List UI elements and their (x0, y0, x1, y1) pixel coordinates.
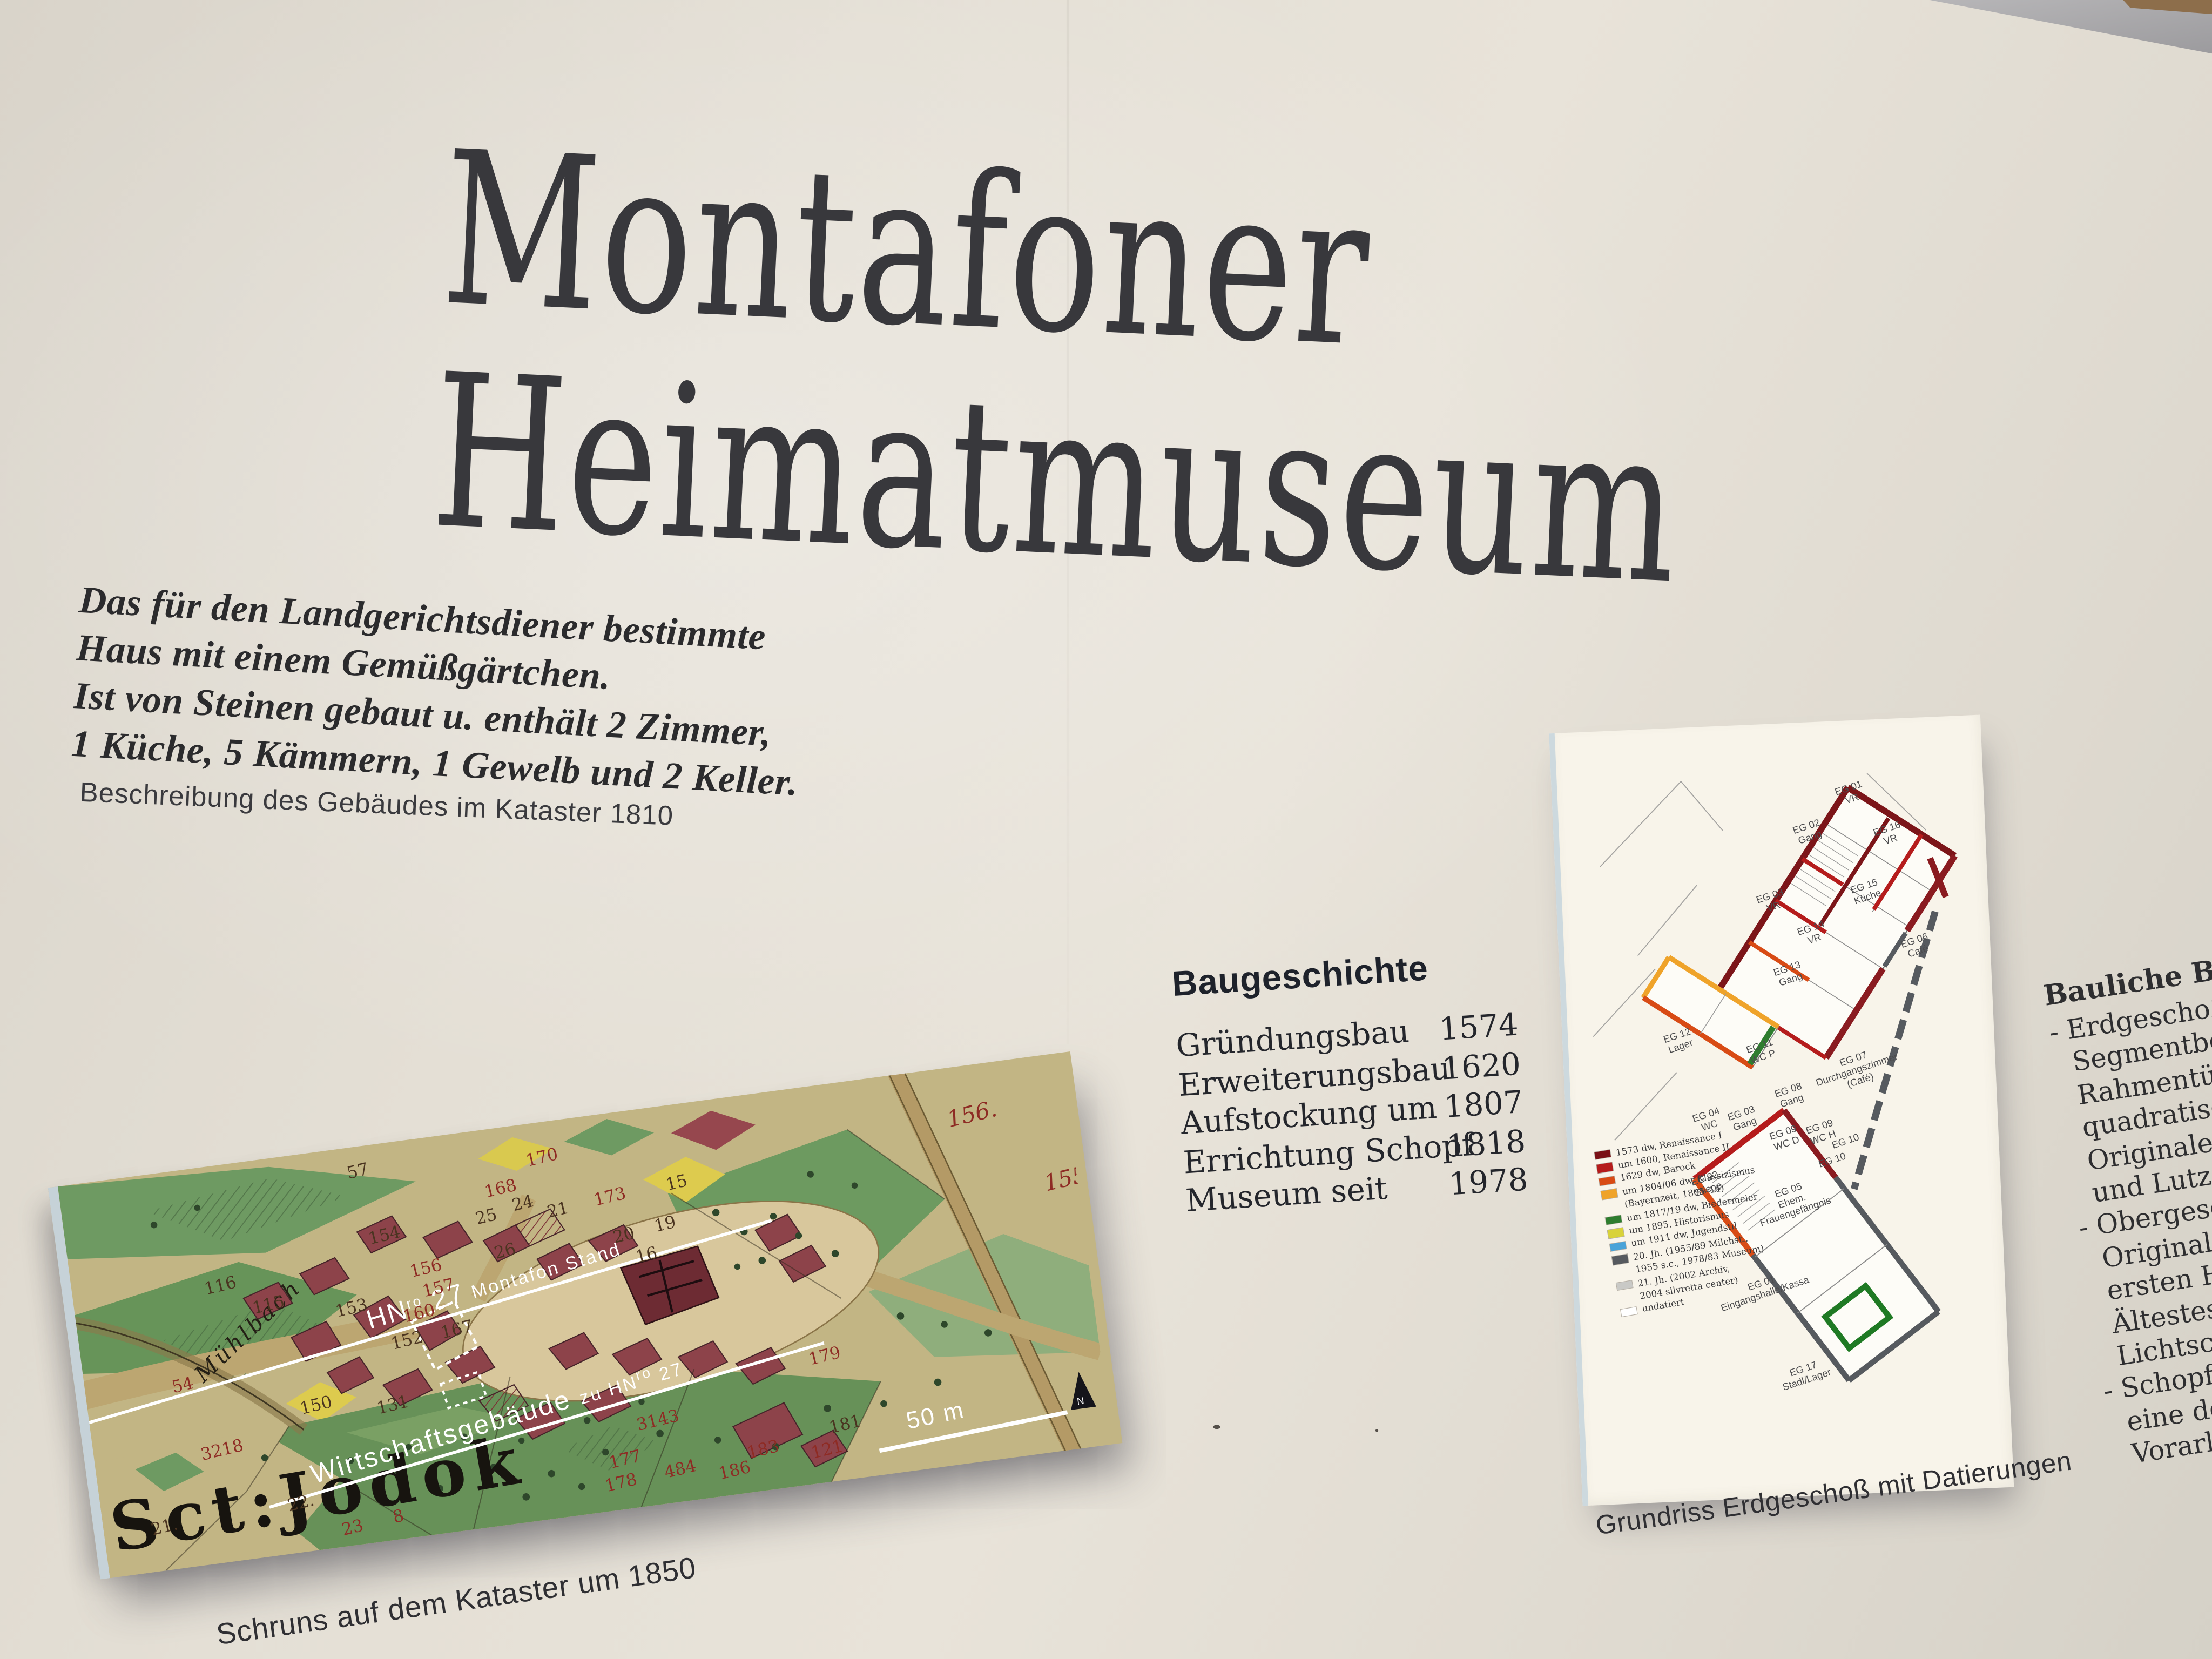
svg-text:N: N (1076, 1395, 1085, 1407)
baugeschichte-section: Baugeschichte Gründungsbau1574Erweiterun… (1171, 942, 1553, 1224)
floorplan-svg: EG 01VREG 02GangEG 16VREG 03VREG 15Küche… (1555, 715, 2008, 1506)
kataster-map: Sct:Jodok Mühlbach HNro 27 Montafon Stan… (58, 1053, 1112, 1578)
legend-swatch (1610, 1241, 1627, 1251)
baugeschichte-year: 1574 (1438, 1008, 1519, 1048)
legend-swatch (1594, 1150, 1611, 1160)
legend-swatch (1616, 1280, 1633, 1291)
wall-speck (1213, 1425, 1220, 1429)
baugeschichte-year: 1620 (1441, 1047, 1522, 1087)
quote-block: Das für den Landgerichtsdiener bestimmte… (70, 576, 807, 807)
room-label: EG 17Stadl/Lager (1777, 1355, 1832, 1393)
besonderheiten-lines: - ErdgeschoßSegmentbogenportal aRahmentü… (2047, 950, 2212, 1475)
baugeschichte-year: 1978 (1448, 1164, 1529, 1204)
wall: Montafoner Heimatmuseum Das für den Land… (0, 0, 2212, 1659)
baugeschichte-title: Baugeschichte (1171, 942, 1540, 1006)
legend-swatch (1601, 1189, 1618, 1199)
baugeschichte-year: 1818 (1446, 1125, 1527, 1165)
floorplan-card: EG 01VREG 02GangEG 16VREG 03VREG 15Küche… (1549, 715, 2014, 1506)
floorplan-legend: 1573 dw, Renaissance Ium 1600, Renaissan… (1594, 1112, 1845, 1320)
legend-swatch (1608, 1228, 1624, 1238)
besonderheiten-section: Bauliche Besonderheiten - ErdgeschoßSegm… (2041, 912, 2212, 1475)
legend-swatch (1596, 1163, 1613, 1173)
wall-speck (1375, 1429, 1378, 1432)
baugeschichte-year: 1807 (1443, 1086, 1524, 1126)
legend-swatch (1606, 1215, 1622, 1225)
legend-swatch (1599, 1176, 1615, 1186)
title-line-2: Heimatmuseum (428, 341, 1683, 621)
legend-swatch (1621, 1306, 1637, 1317)
kataster-map-photo: Sct:Jodok Mühlbach HNro 27 Montafon Stan… (48, 1051, 1123, 1580)
room-label: EG 08Gang (1773, 1080, 1806, 1110)
legend-swatch (1612, 1254, 1629, 1264)
baugeschichte-rows: Gründungsbau1574Erweiterungsbau1620Aufst… (1175, 1007, 1553, 1224)
map-caption: Schruns auf dem Kataster um 1850 (214, 1552, 698, 1653)
museum-title: Montafoner Heimatmuseum (428, 118, 2177, 642)
